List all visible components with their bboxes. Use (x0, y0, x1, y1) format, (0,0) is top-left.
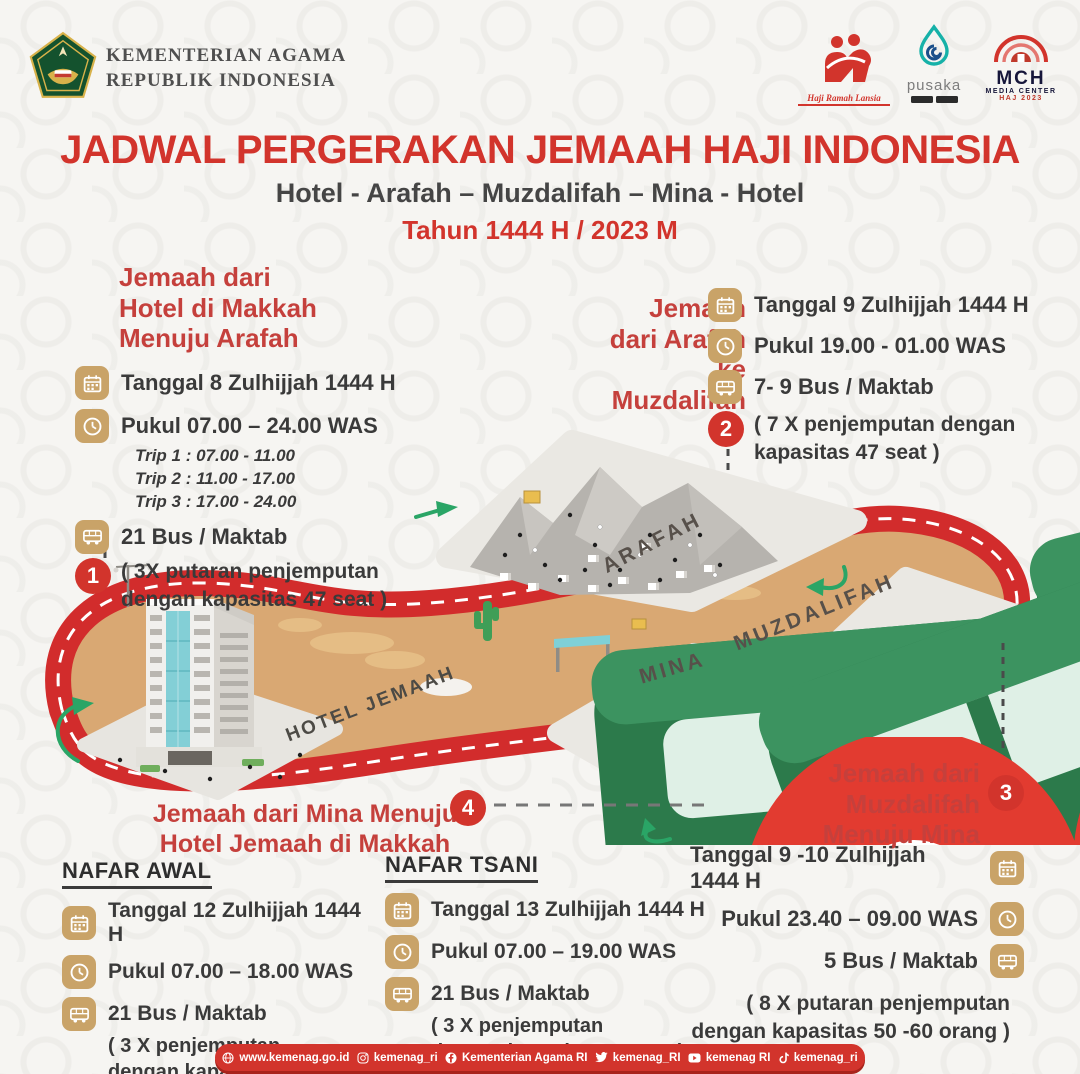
bus-route-icon (62, 997, 96, 1031)
section4-heading: Jemaah dari Mina Menuju Hotel Jemaah di … (150, 800, 460, 859)
bus-route-icon (708, 370, 742, 404)
lansia-caption: Haji Ramah Lansia (798, 93, 890, 106)
nafar-awal-date: Tanggal 12 Zulhijjah 1444 H (108, 899, 372, 947)
calendar-icon (75, 366, 109, 400)
clock-icon (62, 955, 96, 989)
section1-note: ( 3X putaran penjemputan dengan kapasita… (121, 558, 387, 613)
route-subtitle: Hotel - Arafah – Muzdalifah – Mina - Hot… (0, 178, 1080, 209)
nafar-tsani-bus: 21 Bus / Maktab (431, 982, 590, 1006)
section1-time: Pukul 07.00 – 24.00 WAS (121, 413, 378, 439)
pusaka-logo: pusaka (896, 24, 972, 103)
clock-icon (385, 935, 419, 969)
mch-logo: MCH MEDIA CENTER HAJ 2023 (978, 30, 1064, 102)
ministry-line2: REPUBLIK INDONESIA (106, 69, 346, 94)
section-hotel-to-arafah: Jemaah dari Hotel di Makkah Menuju Arafa… (75, 262, 435, 613)
section3-date: Tanggal 9 -10 Zulhijjah 1444 H (690, 842, 978, 894)
section2-date: Tanggal 9 Zulhijjah 1444 H (754, 292, 1029, 318)
clock-icon (990, 902, 1024, 936)
pusaka-badges (896, 96, 972, 103)
poster-root: KEMENTERIAN AGAMA REPUBLIK INDONESIA Haj… (0, 0, 1080, 1074)
section3-heading: Jemaah dari Muzdalifah Menuju Mina (770, 758, 980, 850)
footer-instagram: kemenag_ri (357, 1052, 438, 1064)
haji-ramah-lansia-logo: Haji Ramah Lansia (798, 34, 890, 106)
globe-icon (222, 1052, 234, 1064)
section1-heading: Jemaah dari Hotel di Makkah Menuju Arafa… (75, 262, 435, 354)
step-badge-2: 2 (708, 411, 744, 447)
footer-tiktok: kemenag_ri (778, 1052, 858, 1064)
social-footer-bar: www.kemenag.go.id kemenag_ri Kementerian… (215, 1044, 865, 1071)
nafar-tsani-date: Tanggal 13 Zulhijjah 1444 H (431, 898, 705, 922)
hotel-building (136, 599, 264, 772)
calendar-icon (990, 851, 1024, 885)
section2-time: Pukul 19.00 - 01.00 WAS (754, 333, 1006, 359)
footer-website: www.kemenag.go.id (222, 1052, 349, 1064)
calendar-icon (708, 288, 742, 322)
mch-arch-icon (990, 30, 1052, 64)
clock-icon (75, 409, 109, 443)
twitter-icon (595, 1052, 608, 1063)
section3-time: Pukul 23.40 – 09.00 WAS (721, 906, 978, 932)
step-badge-3: 3 (988, 775, 1024, 811)
clock-icon (708, 329, 742, 363)
pusaka-label: pusaka (896, 77, 972, 94)
kemenag-logo-icon (28, 30, 98, 107)
step-badge-4: 4 (450, 790, 486, 826)
page-title: JADWAL PERGERAKAN JEMAAH HAJI INDONESIA (0, 128, 1080, 173)
youtube-icon (688, 1053, 701, 1063)
mch-abbr: MCH (978, 69, 1064, 88)
nafar-tsani-time: Pukul 07.00 – 19.00 WAS (431, 940, 676, 964)
bus-route-icon (385, 977, 419, 1011)
nafar-awal-time: Pukul 07.00 – 18.00 WAS (108, 960, 353, 984)
mch-line2: HAJ 2023 (978, 95, 1064, 102)
section-muzdalifah-to-mina: Tanggal 9 -10 Zulhijjah 1444 H Pukul 23.… (690, 842, 1024, 1045)
nafar-tsani-title: NAFAR TSANI (385, 852, 538, 883)
lansia-figures-icon (807, 34, 881, 88)
section1-date: Tanggal 8 Zulhijjah 1444 H (121, 370, 396, 396)
footer-youtube: kemenag RI (688, 1052, 771, 1064)
nafar-tsani-column: NAFAR TSANI Tanggal 13 Zulhijjah 1444 H … (385, 852, 705, 1066)
section1-bus: 21 Bus / Maktab (121, 524, 287, 550)
section-arafah-to-muzdalifah: Tanggal 9 Zulhijjah 1444 H Pukul 19.00 -… (708, 288, 1068, 466)
facebook-icon (445, 1052, 457, 1064)
year-subtitle: Tahun 1444 H / 2023 M (0, 215, 1080, 246)
section3-bus: 5 Bus / Maktab (824, 948, 978, 974)
calendar-icon (385, 893, 419, 927)
bus-route-icon (75, 520, 109, 554)
bus-route-icon (990, 944, 1024, 978)
mch-line1: MEDIA CENTER (978, 88, 1064, 95)
calendar-icon (62, 906, 96, 940)
section3-note: ( 8 X putaran penjemputan dengan kapasit… (690, 990, 1024, 1045)
footer-twitter: kemenag_RI (595, 1052, 681, 1064)
pusaka-droplet-icon (914, 24, 954, 72)
nafar-awal-title: NAFAR AWAL (62, 858, 212, 889)
step-badge-1: 1 (75, 558, 111, 594)
nafar-awal-column: NAFAR AWAL Tanggal 12 Zulhijjah 1444 H P… (62, 858, 372, 1074)
ministry-line1: KEMENTERIAN AGAMA (106, 44, 346, 69)
instagram-icon (357, 1052, 369, 1064)
section2-note: ( 7 X penjemputan dengan kapasitas 47 se… (754, 411, 1015, 466)
section1-trips: Trip 1 : 07.00 - 11.00 Trip 2 : 11.00 - … (135, 445, 435, 514)
section2-bus: 7- 9 Bus / Maktab (754, 374, 934, 400)
footer-facebook: Kementerian Agama RI (445, 1052, 587, 1064)
nafar-awal-bus: 21 Bus / Maktab (108, 1002, 267, 1026)
tiktok-icon (778, 1052, 789, 1064)
ministry-name: KEMENTERIAN AGAMA REPUBLIK INDONESIA (106, 44, 346, 93)
